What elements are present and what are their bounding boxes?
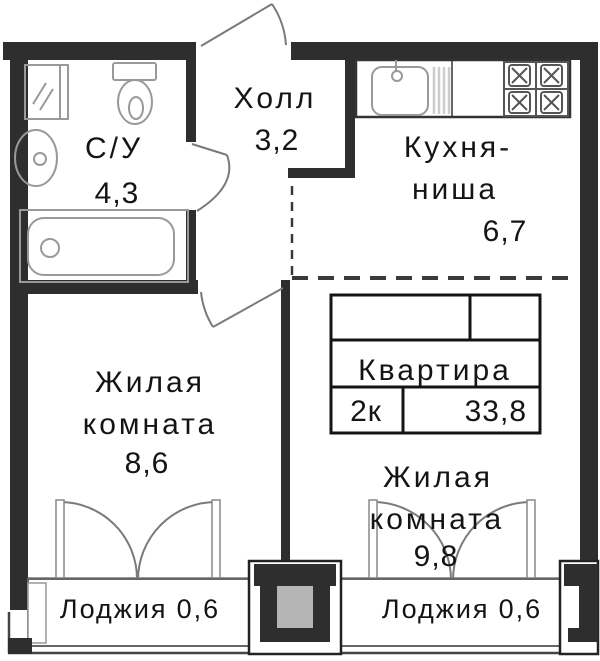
sink-drain: [34, 153, 46, 165]
loggia-left-label: Лоджия0,6: [60, 594, 220, 624]
bathroom-area: 4,3: [95, 177, 140, 210]
living-room-left-label-line1: Жилая: [95, 366, 205, 399]
bathroom-door-leaf: [192, 144, 227, 155]
wall-hall-bottom: [288, 168, 355, 178]
apartment-total-area: 33,8: [465, 395, 527, 428]
living-room-left-door: [201, 288, 283, 327]
wall-bathroom-right-upper: [186, 60, 196, 142]
toilet-tank: [113, 63, 156, 80]
bathroom-door-arc: [197, 155, 229, 211]
hall-label: Холл: [234, 82, 317, 115]
living-room-right-area: 9,8: [414, 540, 459, 573]
wall-top-left: [3, 42, 196, 60]
hall-area: 3,2: [255, 124, 300, 157]
toilet-bowl: [118, 80, 152, 124]
floor-plan-drawing: Квартира 2к 33,8 С/У 4,3 Холл 3,2 Кухня-…: [0, 0, 600, 661]
kitchen-label-line2: ниша: [412, 173, 498, 206]
entrance-door: [201, 4, 286, 46]
washing-machine-mark-2: [40, 89, 53, 110]
balcony-door-leaf: [212, 500, 220, 578]
entrance-door-arc: [272, 4, 286, 45]
balcony-door-leaf: [56, 500, 64, 578]
balcony-door-leaf: [527, 500, 535, 578]
loggia-right-area: 0,6: [499, 594, 543, 624]
loggia-left-name: Лоджия: [60, 594, 168, 624]
living-room-door-leaf: [213, 288, 283, 327]
apartment-title: Квартира: [358, 354, 512, 387]
toilet-icon: [113, 63, 156, 124]
balcony-door-arc: [138, 502, 216, 580]
living-room-left-label-line2: комната: [83, 408, 217, 441]
pillar-top-bar: [564, 564, 598, 586]
living-room-right-label-line1: Жилая: [383, 461, 493, 494]
wall-top-right: [291, 42, 580, 60]
bathroom-fixtures: [15, 63, 188, 282]
pillar-bottom-right: [560, 561, 598, 654]
wall-corner-bottom-left: [8, 638, 32, 654]
pillar-center: [249, 561, 341, 654]
apartment-info-table: Квартира 2к 33,8: [331, 295, 540, 433]
toilet-bowl-inner: [129, 97, 143, 119]
kitchen-area: 6,7: [483, 215, 528, 248]
bathroom-door: [192, 144, 229, 211]
entrance-door-leaf: [201, 4, 272, 46]
living-room-door-arc: [201, 292, 213, 327]
pillar-top-bar: [254, 564, 336, 586]
wall-right: [580, 42, 598, 565]
bathtub-inner: [28, 218, 174, 275]
bathtub-drain: [41, 239, 59, 257]
bathtub-icon: [20, 210, 188, 282]
living-room-left-area: 8,6: [125, 447, 170, 480]
wall-hall-right: [345, 60, 355, 178]
wall-left: [10, 42, 28, 610]
loggia-side-wall: [28, 583, 46, 643]
balcony-door-arc: [60, 502, 137, 579]
kitchen-counter: [356, 60, 570, 117]
pillar-core: [277, 586, 313, 628]
loggia-right-label: Лоджия0,6: [382, 594, 542, 624]
apartment-rooms-count: 2к: [350, 395, 382, 428]
pillar-bottom-bar: [568, 628, 598, 642]
kitchen-label-line1: Кухня-: [404, 131, 512, 164]
living-room-right-label-line2: комната: [370, 503, 504, 536]
bathtub-outer: [20, 210, 188, 282]
bathroom-label: С/У: [85, 132, 143, 165]
floor-plan-page: Квартира 2к 33,8 С/У 4,3 Холл 3,2 Кухня-…: [0, 0, 600, 661]
wall-between-rooms: [281, 280, 290, 565]
washing-machine-icon: [25, 65, 68, 119]
washing-machine-mark-1: [33, 83, 46, 104]
washing-machine-body: [25, 65, 68, 119]
loggia-left-area: 0,6: [177, 594, 221, 624]
balcony-doors-left-room: [56, 500, 220, 580]
pillar-bottom-bar: [260, 628, 330, 642]
loggia-right-name: Лоджия: [382, 594, 490, 624]
